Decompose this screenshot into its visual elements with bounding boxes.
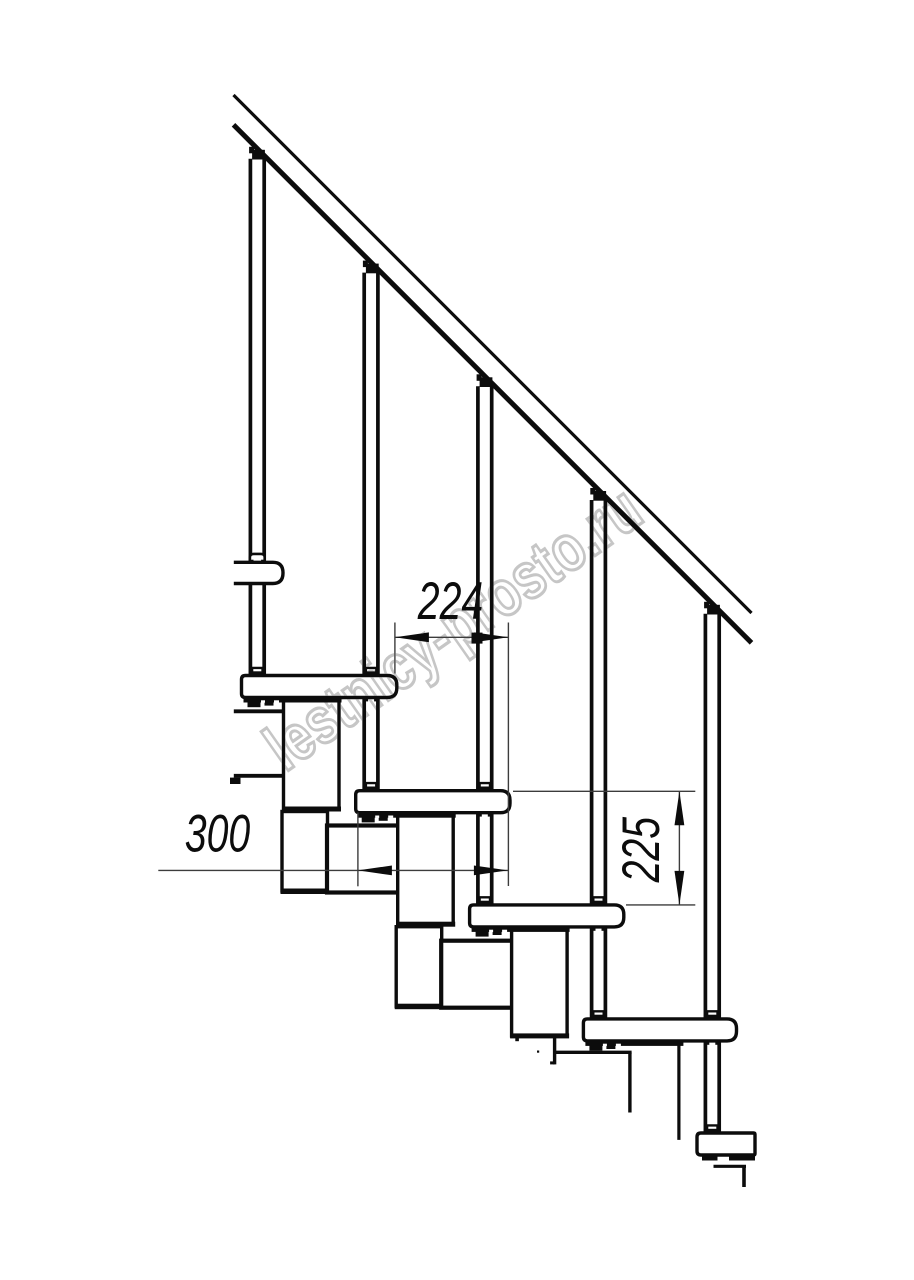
svg-text:225: 225 <box>611 816 670 883</box>
svg-text:300: 300 <box>185 804 250 863</box>
svg-text:lestnicy-prosto.ru: lestnicy-prosto.ru <box>252 472 655 785</box>
